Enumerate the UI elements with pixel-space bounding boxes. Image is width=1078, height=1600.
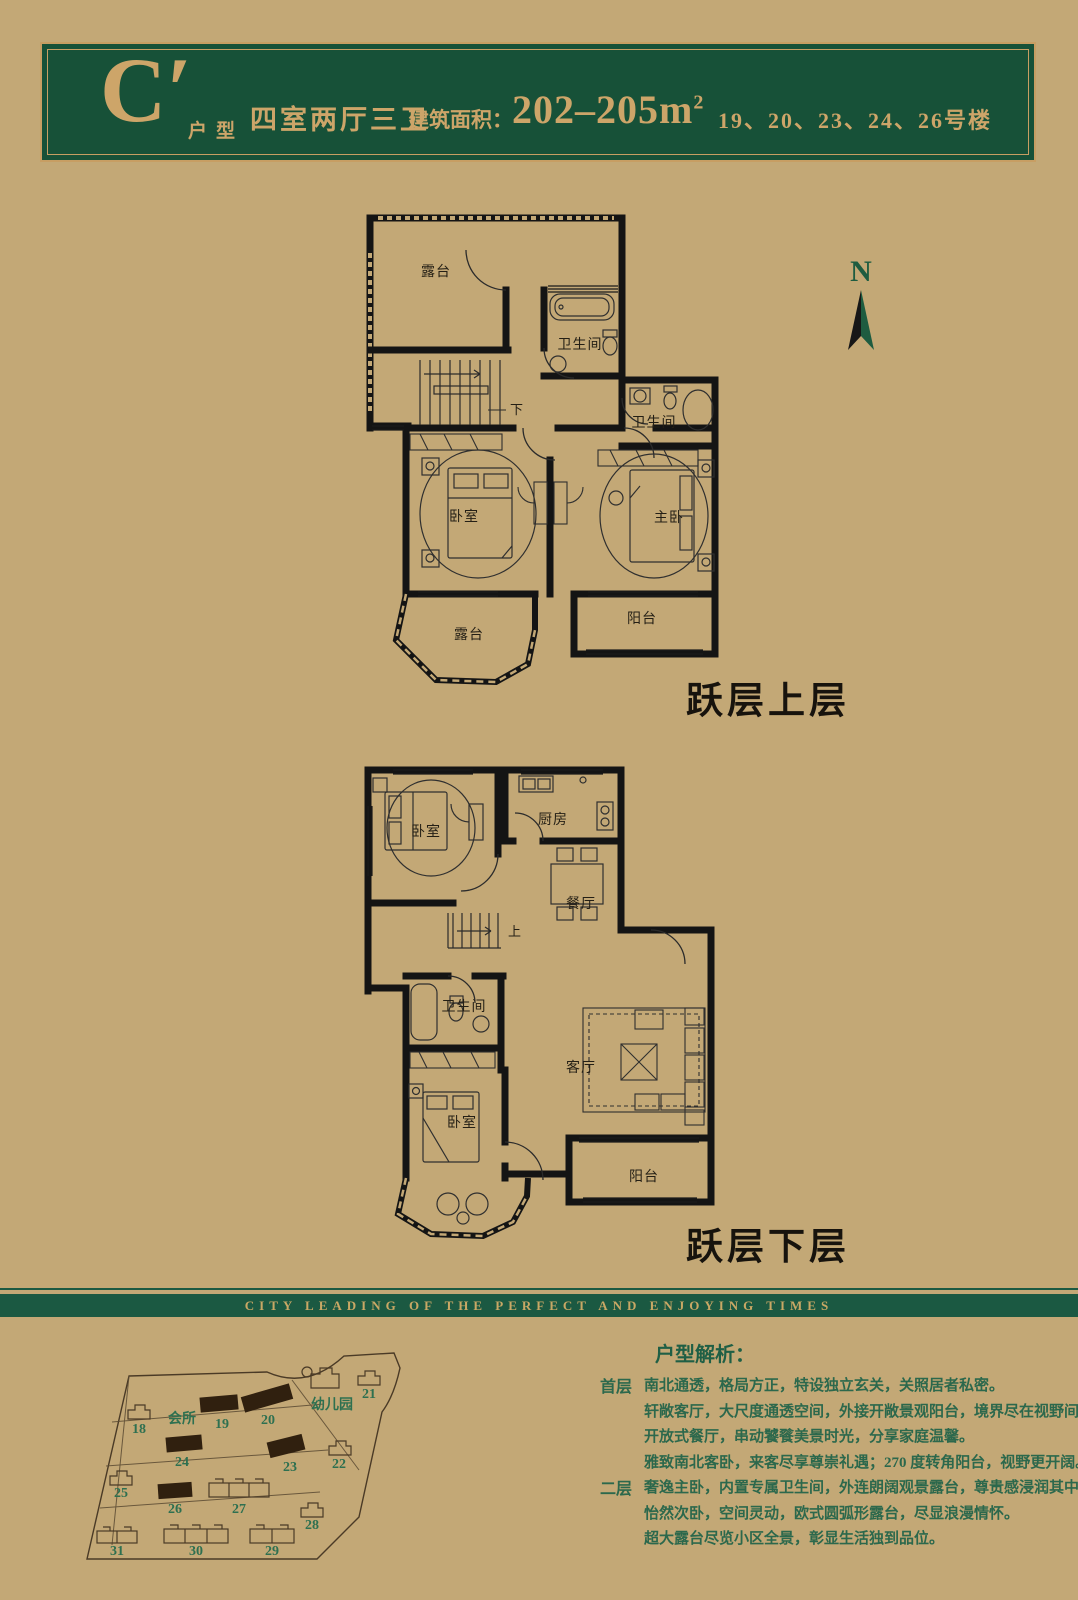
analysis-line: 雅致南北客卧，来客尽享尊崇礼遇；270 度转角阳台，视野更开阔。 — [644, 1451, 1078, 1477]
poster-page: C′ 户型 四室两厅三卫 建筑面积： 202–205m2 19、20、23、24… — [0, 0, 1078, 1600]
site-num-26: 26 — [168, 1502, 182, 1517]
building-27 — [209, 1479, 269, 1497]
room-label-bath2: 卫生间 — [632, 415, 677, 431]
area-value: 202–205m2 — [512, 86, 704, 133]
building-31 — [97, 1527, 137, 1543]
room-label-bedroom-bottom: 卧室 — [447, 1114, 477, 1131]
divider-rule — [0, 1288, 1078, 1290]
analysis-line: 超大露台尽览小区全景，彰显生活独到品位。 — [644, 1527, 1078, 1553]
room-label-balcony-upper: 阳台 — [627, 611, 657, 627]
site-num-29: 29 — [265, 1544, 279, 1559]
north-label: N — [833, 256, 889, 288]
room-label-dining: 餐厅 — [566, 896, 596, 912]
lower-floor-plan: 卧室 厨房 餐厅 卫生间 客厅 卧室 阳台 上 — [353, 746, 719, 1240]
room-label-terrace-bottom: 露台 — [454, 627, 484, 643]
building-19 — [199, 1394, 238, 1412]
wardrobes — [410, 434, 698, 466]
room-label-master: 主卧 — [654, 510, 684, 526]
building-22 — [329, 1441, 351, 1455]
analysis-title: 户型解析： — [655, 1338, 1078, 1367]
room-label-terrace-top: 露台 — [421, 264, 451, 280]
north-arrow-icon — [833, 288, 889, 358]
wardrobe — [410, 1052, 495, 1068]
site-num-22: 22 — [332, 1457, 346, 1472]
analysis-section-second-floor: 二层 奢逸主卧，内置专属卫生间，外连朗阔观景露台，尊贵感浸润其中。 怡然次卧，空… — [600, 1476, 1078, 1553]
room-label-bath: 卫生间 — [442, 999, 487, 1015]
site-num-31: 31 — [110, 1544, 124, 1559]
slogan-band: CITY LEADING OF THE PERFECT AND ENJOYING… — [0, 1294, 1078, 1317]
room-label-bedroom-top: 卧室 — [411, 823, 441, 840]
site-num-19: 19 — [215, 1417, 229, 1432]
analysis-line: 开放式餐厅，串动饕餮美景时光，分享家庭温馨。 — [644, 1425, 1078, 1451]
analysis-block: 户型解析： 首层 南北通透，格局方正，特设独立玄关，关照居者私密。 轩敞客厅，大… — [600, 1338, 1078, 1553]
building-30 — [164, 1525, 228, 1543]
section-label: 二层 — [600, 1476, 644, 1553]
analysis-line: 怡然次卧，空间灵动，欧式圆弧形露台，尽显浪漫情怀。 — [644, 1502, 1078, 1528]
bedroom-bottom-bed — [409, 1084, 488, 1224]
bay-window-wall — [398, 1178, 528, 1236]
site-num-23: 23 — [283, 1460, 297, 1475]
site-num-21: 21 — [362, 1387, 376, 1402]
outer-walls — [370, 218, 715, 654]
analysis-section-first-floor: 首层 南北通透，格局方正，特设独立玄关，关照居者私密。 轩敞客厅，大尺度通透空间… — [600, 1374, 1078, 1476]
bathtub-icon — [550, 294, 617, 372]
building-20 — [241, 1383, 293, 1412]
building-21 — [358, 1371, 380, 1385]
site-num-28: 28 — [305, 1518, 319, 1533]
lower-plan-caption: 跃层下层 — [686, 1216, 850, 1270]
building-23 — [267, 1434, 306, 1458]
staircase — [448, 913, 501, 948]
room-label-bath1: 卫生间 — [558, 337, 603, 353]
site-num-27: 27 — [232, 1502, 246, 1517]
building-24 — [165, 1434, 202, 1452]
stairs-direction-up: 上 — [508, 924, 521, 939]
clubhouse-label: 会所 — [168, 1410, 196, 1427]
building-numbers-text: 19、20、23、24、26号楼 — [718, 103, 992, 135]
room-label-kitchen: 厨房 — [538, 812, 568, 828]
analysis-line: 轩敞客厅，大尺度通透空间，外接开敞景观阳台，境界尽在视野间。 — [644, 1400, 1078, 1426]
building-26 — [158, 1482, 193, 1499]
building-25 — [110, 1471, 132, 1485]
building-28 — [301, 1503, 323, 1517]
site-map: 18 19 20 21 22 23 24 25 26 27 28 29 30 3… — [72, 1340, 424, 1585]
doors — [448, 813, 685, 1180]
room-label-living: 客厅 — [566, 1059, 596, 1076]
inner-walls — [370, 290, 715, 594]
unit-type-letter: C′ — [100, 30, 192, 150]
kindergarten-building — [302, 1367, 339, 1388]
room-layout-text: 四室两厅三卫 — [250, 98, 430, 137]
analysis-line: 南北通透，格局方正，特设独立玄关，关照居者私密。 — [644, 1374, 1078, 1400]
header-plate: C′ 户型 四室两厅三卫 建筑面积： 202–205m2 19、20、23、24… — [40, 42, 1036, 162]
area-label: 建筑面积： — [408, 104, 513, 134]
site-num-25: 25 — [114, 1486, 128, 1501]
room-label-bedroom: 卧室 — [449, 508, 479, 525]
stairs-direction-down: 下 — [510, 402, 523, 417]
site-num-24: 24 — [175, 1455, 189, 1470]
site-num-30: 30 — [189, 1544, 203, 1559]
living-furniture — [583, 1008, 705, 1125]
analysis-line: 奢逸主卧，内置专属卫生间，外连朗阔观景露台，尊贵感浸润其中。 — [644, 1476, 1078, 1502]
highlighted-buildings — [158, 1383, 306, 1499]
north-indicator: N — [833, 256, 889, 363]
section-label: 首层 — [600, 1374, 644, 1476]
upper-plan-caption: 跃层上层 — [686, 670, 850, 724]
upper-floor-plan: 露台 卫生间 卫生间 卧室 主卧 露台 阳台 下 — [358, 198, 724, 703]
staircase — [420, 360, 500, 425]
slogan-text: CITY LEADING OF THE PERFECT AND ENJOYING… — [245, 1298, 833, 1314]
building-18 — [128, 1405, 150, 1419]
unit-type-label: 户型 — [188, 116, 244, 143]
kindergarten-label: 幼儿园 — [311, 1396, 353, 1413]
site-num-20: 20 — [261, 1413, 275, 1428]
site-num-18: 18 — [132, 1422, 146, 1437]
building-29 — [250, 1525, 294, 1543]
room-label-balcony-lower: 阳台 — [629, 1169, 659, 1185]
